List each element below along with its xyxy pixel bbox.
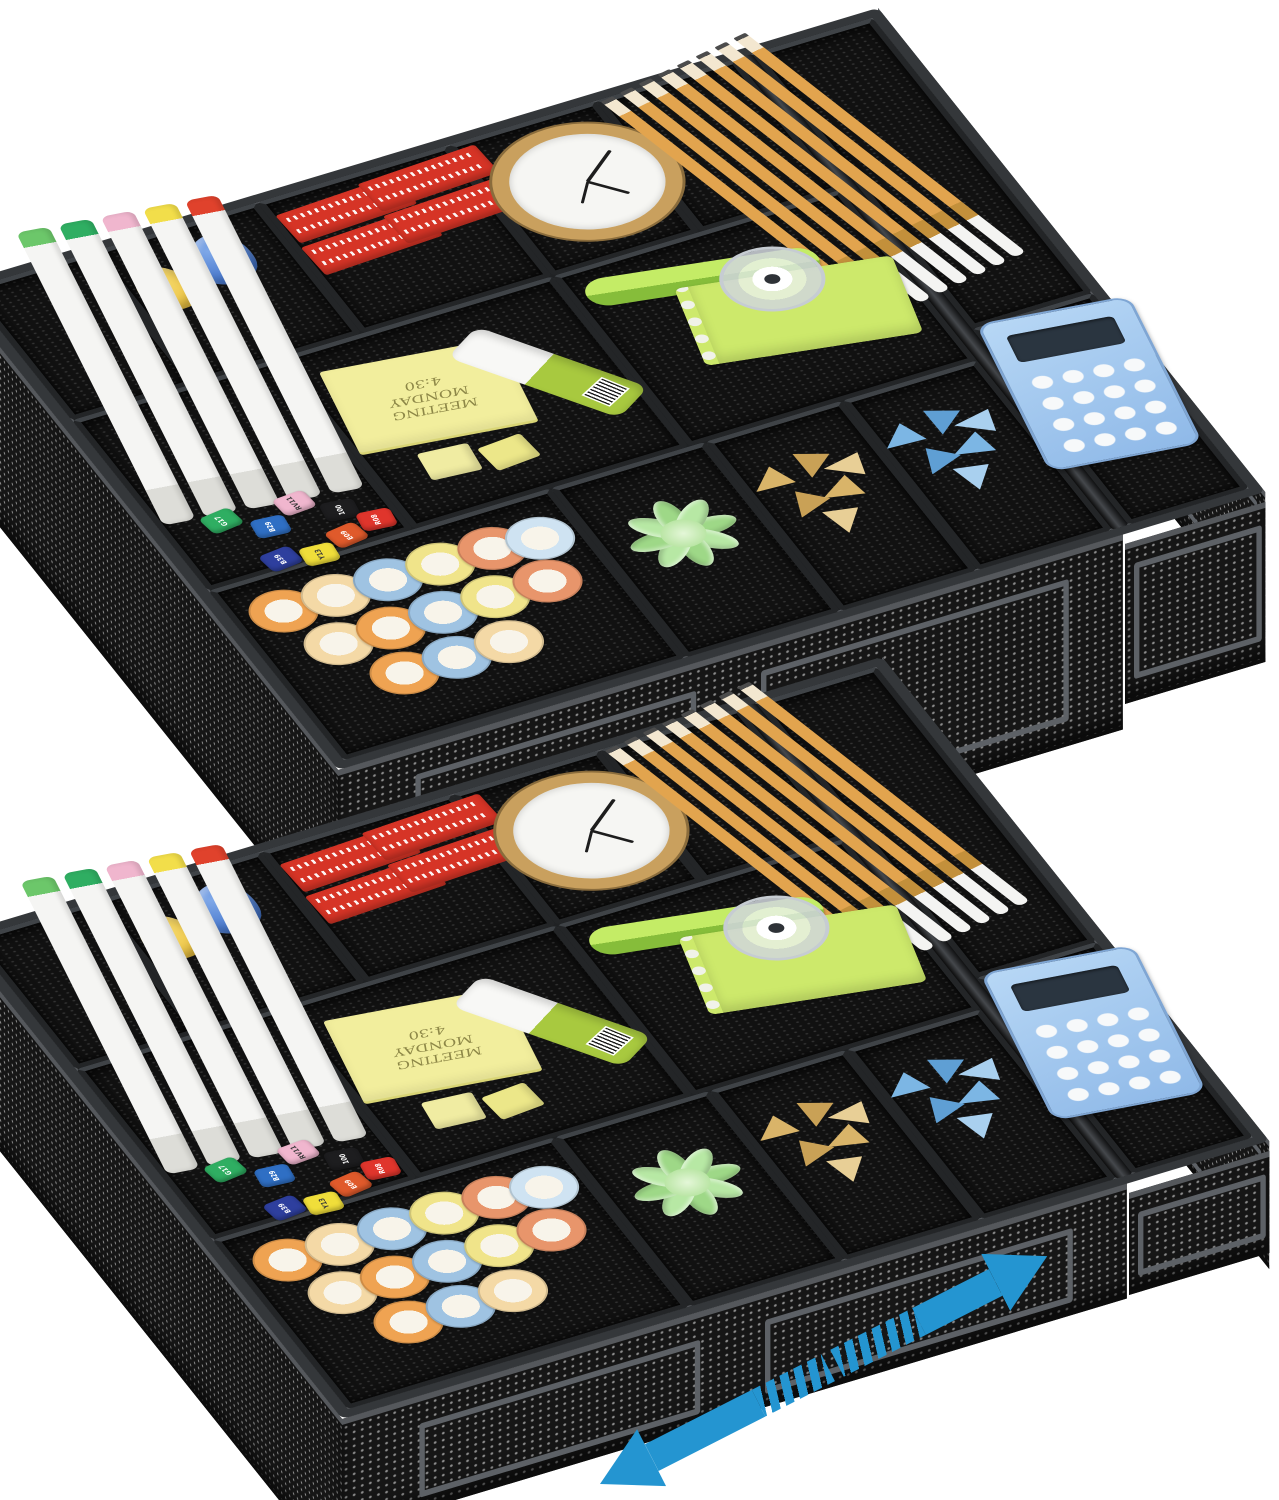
- marker-code: Y13: [312, 548, 327, 560]
- marker-code: B29: [268, 1170, 282, 1182]
- clock-hand: [591, 830, 635, 844]
- binder-clip: [818, 1149, 869, 1182]
- marker-code: B39: [277, 1202, 294, 1214]
- binder-clip: [828, 1124, 870, 1147]
- product-photo: G17 B29 RV11 100 B39 Y13 E09 R08 MEETING…: [0, 0, 1279, 1500]
- binder-clip: [954, 432, 996, 455]
- binder-clip: [945, 457, 996, 490]
- binder-clip: [958, 1081, 1000, 1104]
- wall-frame-panel: [1138, 1174, 1266, 1276]
- binder-clip: [954, 404, 1007, 435]
- arrow-stripes: [752, 1354, 835, 1416]
- marker-code: G17: [217, 1164, 234, 1176]
- marker-code: R08: [369, 514, 383, 526]
- marker-code: Y13: [316, 1197, 331, 1209]
- marker-code: 100: [333, 504, 347, 515]
- binder-clip: [752, 1113, 801, 1141]
- tape-hub: [762, 272, 783, 285]
- clock-hand: [581, 181, 590, 203]
- binder-clip: [958, 1053, 1011, 1084]
- marker-code: 100: [337, 1153, 351, 1164]
- binder-clip: [828, 1096, 881, 1127]
- binder-clip: [949, 1106, 1000, 1139]
- calculator-keys: [1016, 350, 1184, 460]
- barcode: [581, 377, 629, 407]
- marker-code: B39: [273, 553, 290, 565]
- marker-code: B29: [264, 521, 278, 533]
- marker-code: RV11: [284, 496, 304, 511]
- calculator-keys: [1020, 999, 1188, 1109]
- barcode: [585, 1026, 633, 1056]
- binder-clip: [879, 421, 928, 449]
- sticky-note-text: MEETING MONDAY 4:30: [376, 369, 480, 422]
- binder-clip: [824, 475, 866, 498]
- binder-clip: [748, 464, 797, 492]
- marker-code: E09: [338, 529, 355, 540]
- binder-clip: [824, 447, 877, 478]
- clock-hand: [590, 799, 616, 831]
- clock-hand: [587, 181, 631, 195]
- binder-clip: [883, 1070, 932, 1098]
- wall-frame-panel: [1134, 525, 1262, 679]
- sticky-note-text: MEETING MONDAY 4:30: [380, 1018, 484, 1071]
- mesh-wall-front-extension: [1125, 502, 1265, 704]
- binder-clip: [814, 500, 865, 533]
- marker-code: G17: [213, 515, 230, 527]
- clock-hand: [586, 150, 612, 182]
- clock-hand: [585, 830, 594, 852]
- marker-code: R08: [373, 1163, 387, 1175]
- marker-code: E09: [342, 1178, 359, 1189]
- marker-code: RV11: [288, 1145, 308, 1160]
- tape-hub: [766, 921, 787, 934]
